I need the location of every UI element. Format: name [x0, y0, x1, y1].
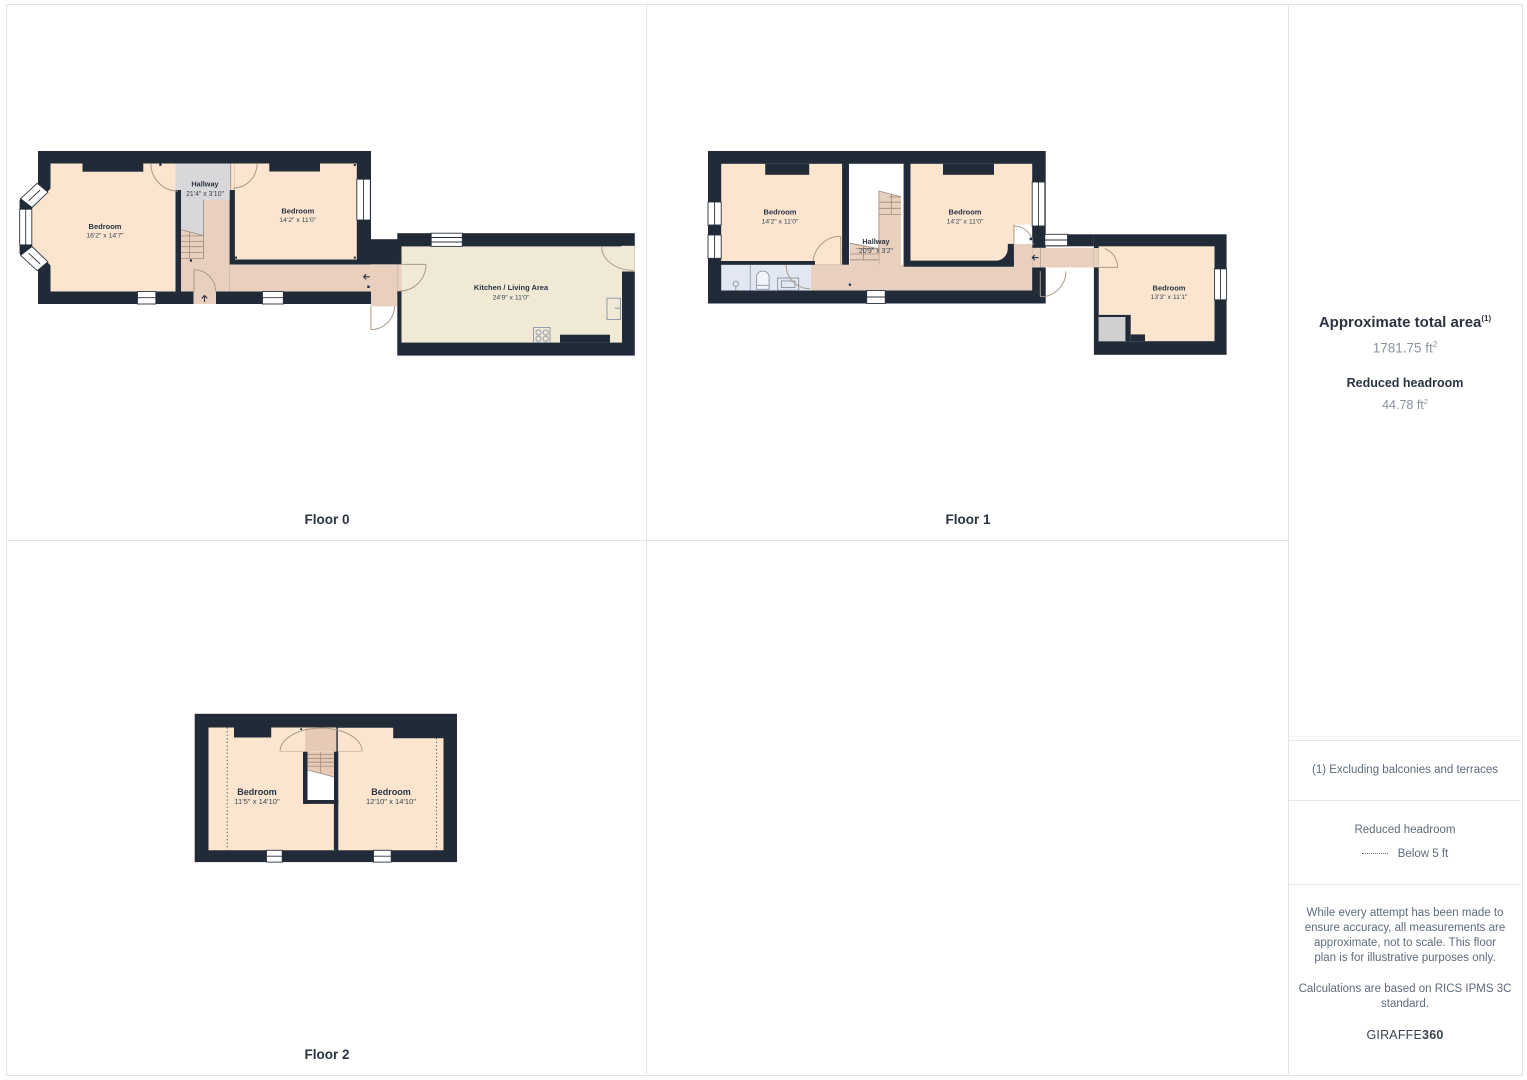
- svg-text:Kitchen / Living Area: Kitchen / Living Area: [474, 283, 549, 292]
- svg-text:Bedroom: Bedroom: [89, 222, 122, 231]
- svg-text:14'2" x 11'0": 14'2" x 11'0": [762, 219, 799, 226]
- svg-text:16'2" x 14'7": 16'2" x 14'7": [86, 233, 124, 240]
- svg-text:14'2" x 11'0": 14'2" x 11'0": [947, 219, 984, 226]
- svg-text:21'4" x 3'10": 21'4" x 3'10": [186, 191, 224, 198]
- svg-text:11'5" x 14'10": 11'5" x 14'10": [234, 797, 280, 806]
- svg-text:Bedroom: Bedroom: [764, 208, 797, 217]
- svg-text:24'9" x 11'0": 24'9" x 11'0": [493, 295, 530, 302]
- svg-text:20'9" x 3'2": 20'9" x 3'2": [859, 248, 894, 255]
- svg-text:Bedroom: Bedroom: [371, 787, 411, 797]
- svg-text:Bedroom: Bedroom: [1153, 284, 1186, 293]
- svg-text:Bedroom: Bedroom: [281, 207, 314, 216]
- svg-text:Hallway: Hallway: [862, 237, 890, 246]
- svg-text:Hallway: Hallway: [191, 180, 219, 189]
- svg-text:Bedroom: Bedroom: [949, 208, 982, 217]
- svg-text:13'3" x 11'1": 13'3" x 11'1": [1151, 294, 1188, 301]
- svg-text:Bedroom: Bedroom: [237, 787, 277, 797]
- svg-text:14'2" x 11'0": 14'2" x 11'0": [279, 217, 316, 224]
- svg-text:12'10" x 14'10": 12'10" x 14'10": [366, 797, 416, 806]
